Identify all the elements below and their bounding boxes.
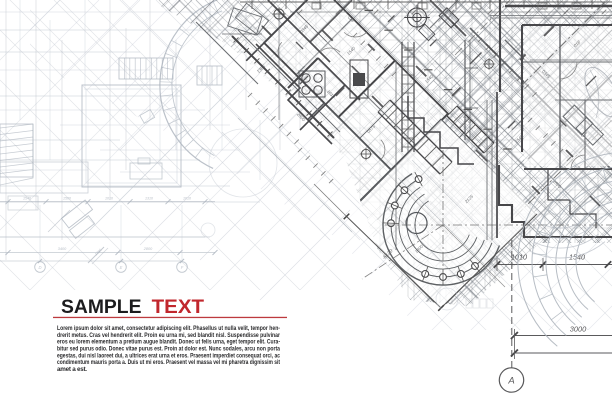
- svg-text:amet a est.: amet a est.: [57, 366, 87, 373]
- svg-text:SAMPLETEXT: SAMPLETEXT: [61, 296, 204, 318]
- svg-text:condimentum mauris porta a. Du: condimentum mauris porta a. Duis ut mi e…: [57, 359, 281, 366]
